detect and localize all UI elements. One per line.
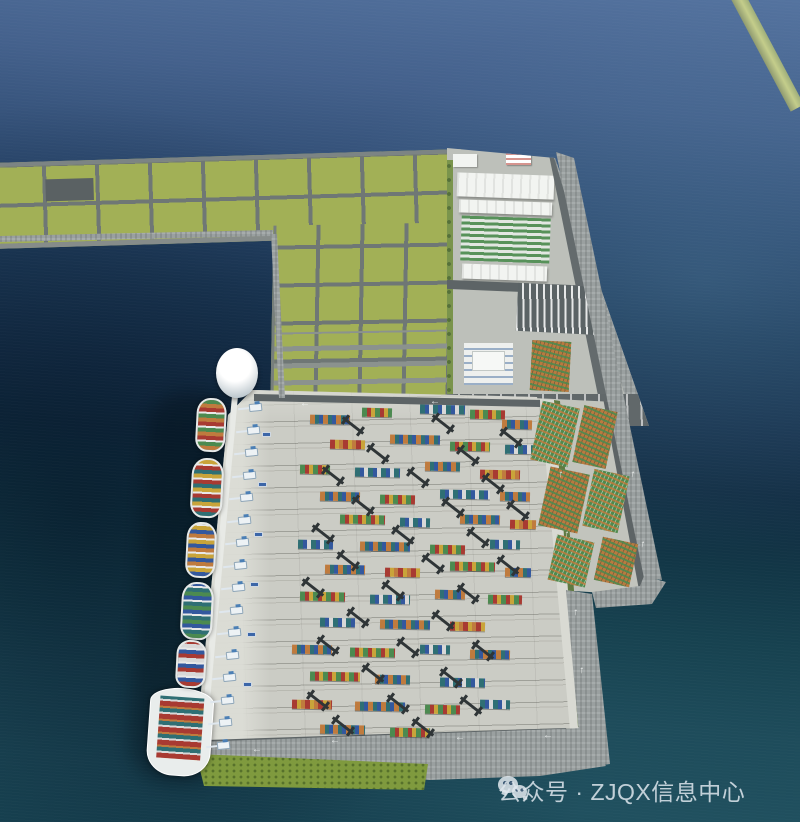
container-terminal-yard [190, 385, 592, 767]
paved-lot [45, 178, 94, 201]
warehouse [462, 264, 547, 282]
dome-vessel [216, 348, 258, 398]
container-block [530, 340, 572, 392]
watermark-text: 公众号 · ZJQX信息中心 [498, 773, 745, 807]
warehouse [457, 172, 555, 199]
canopy-building [472, 351, 505, 371]
warehouse [459, 199, 552, 215]
watermark: 公众号 · ZJQX信息中心 [498, 776, 530, 803]
container-ship [145, 686, 215, 778]
green-field-block [270, 222, 459, 401]
aerial-port-rendering: ←←←←←←↑↑↑↑↑↑ 公众号 · ZJQX信息中心 [0, 0, 800, 822]
ship-cargo [156, 696, 204, 761]
small-building [453, 154, 477, 167]
container-rows [460, 215, 551, 263]
